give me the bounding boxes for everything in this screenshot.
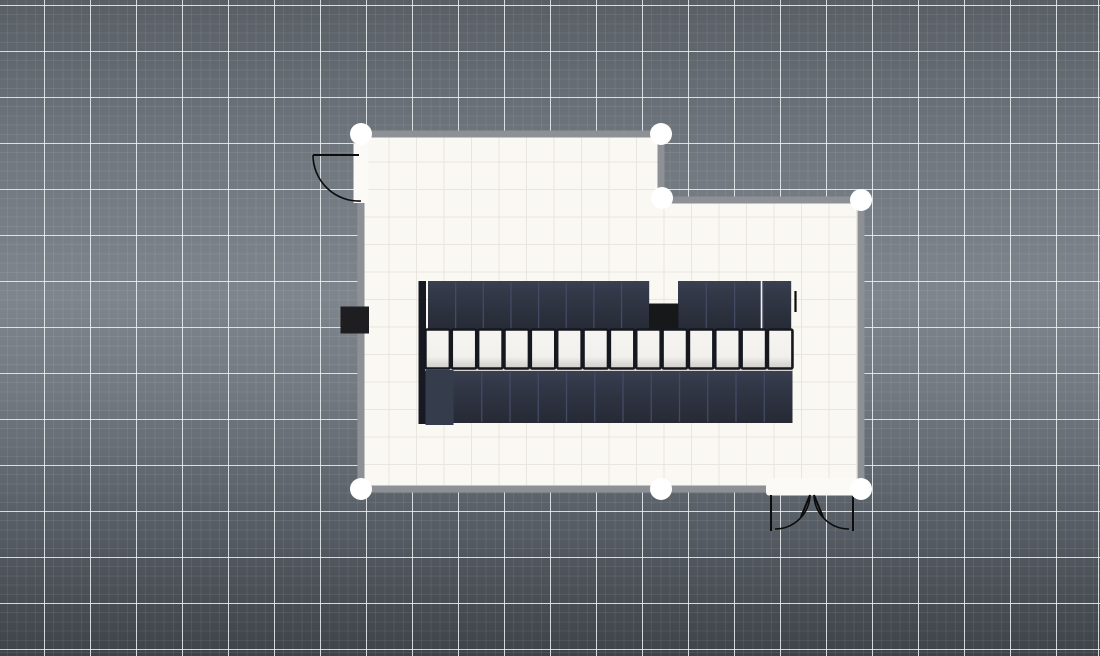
- door-opening: [766, 479, 858, 496]
- chair[interactable]: [425, 330, 450, 369]
- furniture-group[interactable]: [419, 281, 796, 425]
- chair[interactable]: [584, 330, 609, 369]
- wall-box[interactable]: [341, 307, 370, 334]
- chair[interactable]: [689, 330, 714, 369]
- chair[interactable]: [610, 330, 635, 369]
- floorplan-editor-canvas[interactable]: [0, 0, 1100, 656]
- chair[interactable]: [636, 330, 661, 369]
- wall-handle[interactable]: [350, 478, 372, 500]
- wall-handle[interactable]: [650, 478, 672, 500]
- chair[interactable]: [531, 330, 556, 369]
- door-opening: [354, 144, 369, 203]
- chair[interactable]: [742, 330, 767, 369]
- chair[interactable]: [504, 330, 529, 369]
- floor-plan[interactable]: [0, 0, 1100, 656]
- black-box[interactable]: [649, 304, 679, 332]
- wall-handle[interactable]: [850, 189, 872, 211]
- chair[interactable]: [478, 330, 503, 369]
- chair[interactable]: [715, 330, 740, 369]
- desk-special[interactable]: [426, 370, 454, 425]
- door-single[interactable]: [313, 144, 369, 203]
- chair[interactable]: [452, 330, 477, 369]
- wall-handle[interactable]: [350, 123, 372, 145]
- chair[interactable]: [768, 330, 793, 369]
- wall-handle[interactable]: [850, 478, 872, 500]
- door-double[interactable]: [766, 479, 858, 532]
- chair[interactable]: [663, 330, 688, 369]
- wall-handle[interactable]: [650, 123, 672, 145]
- door-swing-arc: [775, 495, 810, 529]
- door-swing-arc: [814, 495, 849, 529]
- wall-handle[interactable]: [651, 187, 673, 209]
- chair[interactable]: [557, 330, 582, 369]
